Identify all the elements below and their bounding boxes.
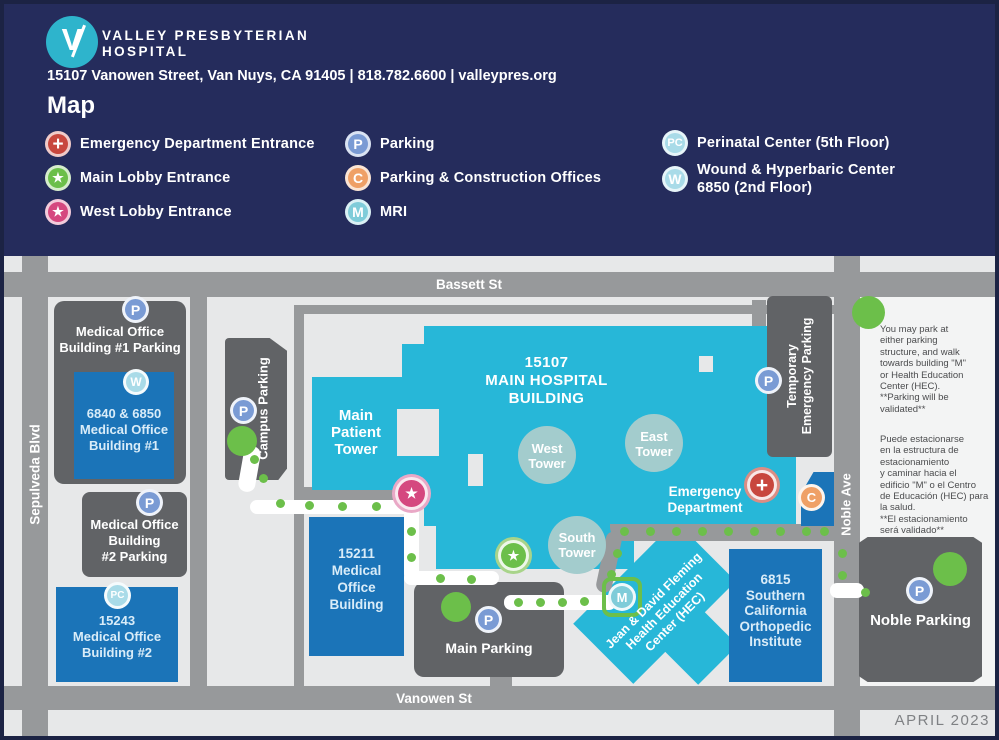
path-dot — [646, 527, 655, 536]
path-dot — [276, 499, 285, 508]
west-lobby-star-icon: ★ — [45, 199, 71, 225]
parking-icon: P — [122, 296, 149, 323]
walkway — [404, 571, 499, 585]
legend-label: MRI — [380, 203, 407, 221]
main-parking-label: Main Parking — [414, 640, 564, 656]
page-title: Map — [47, 92, 95, 120]
west-lobby-star-icon: ★ — [395, 477, 428, 510]
parking-icon: P — [475, 606, 502, 633]
legend-item-parking: P Parking — [345, 131, 435, 157]
path-dot — [861, 588, 870, 597]
legend-label: West Lobby Entrance — [80, 203, 232, 221]
path-dot — [698, 527, 707, 536]
perinatal-center-icon: PC — [662, 130, 688, 156]
parking-icon: P — [755, 367, 782, 394]
street-label-sepulveda: Sepulveda Blvd — [28, 400, 43, 550]
path-dot — [613, 549, 622, 558]
main-lobby-star-icon: ★ — [498, 540, 529, 571]
street-label-bassett: Bassett St — [404, 277, 534, 292]
legend-label: Wound & Hyperbaric Center 6850 (2nd Floo… — [697, 161, 895, 197]
path-dot — [372, 502, 381, 511]
path-dot — [838, 549, 847, 558]
construction-offices-icon: C — [345, 165, 371, 191]
mob2-parking-label: Medical Office Building #2 Parking — [82, 517, 187, 565]
scoi-label: 6815 Southern California Orthopedic Inst… — [729, 572, 822, 650]
address-line: 15107 Vanowen Street, Van Nuys, CA 91405… — [47, 68, 557, 84]
street-middle — [190, 297, 207, 686]
west-tower-label: West Tower — [518, 441, 576, 471]
mob1-label: 6840 & 6850 Medical Office Building #1 — [74, 406, 174, 454]
mob15211-label: 15211 Medical Office Building — [309, 545, 404, 613]
street-label-vanowen: Vanowen St — [374, 691, 494, 706]
parking-icon: P — [906, 577, 933, 604]
legend-item-mri: M MRI — [345, 199, 407, 225]
legend-item-west-lobby: ★ West Lobby Entrance — [45, 199, 232, 225]
path-dot — [724, 527, 733, 536]
mob1-parking-label: Medical Office Building #1 Parking — [54, 324, 186, 356]
parking-icon: P — [136, 489, 163, 516]
parking-icon: P — [230, 397, 257, 424]
hospital-name-line2: HOSPITAL — [102, 44, 188, 59]
east-tower-label: East Tower — [625, 429, 683, 459]
path-dot — [750, 527, 759, 536]
path-dot — [407, 553, 416, 562]
temp-parking-line2: Emergency Parking — [800, 318, 814, 435]
path-dot — [802, 527, 811, 536]
header: V VALLEY PRESBYTERIAN HOSPITAL 15107 Van… — [4, 4, 995, 256]
legend-item-main-lobby: ★ Main Lobby Entrance — [45, 165, 230, 191]
path-dot — [514, 598, 523, 607]
legend-item-emergency-entrance: + Emergency Department Entrance — [45, 131, 315, 157]
mri-icon: M — [608, 583, 636, 611]
parking-note-english: You may park at either parking structure… — [880, 324, 998, 415]
main-hospital-label: 15107 MAIN HOSPITAL BUILDING — [459, 354, 634, 408]
construction-offices-icon: C — [798, 484, 825, 511]
legend-label: Perinatal Center (5th Floor) — [697, 134, 890, 152]
hospital-slot-notch — [468, 454, 483, 486]
path-dot — [338, 502, 347, 511]
hospital-map-flyer: V VALLEY PRESBYTERIAN HOSPITAL 15107 Van… — [0, 0, 999, 740]
walkway — [250, 500, 416, 514]
hospital-courtyard-notch — [397, 409, 439, 456]
walkway — [830, 583, 864, 598]
street-label-noble: Noble Ave — [839, 450, 854, 560]
main-parking-green-marker — [441, 592, 471, 622]
hospital-name-line1: VALLEY PRESBYTERIAN — [102, 28, 309, 43]
path-dot — [536, 598, 545, 607]
noble-parking-label: Noble Parking — [859, 612, 982, 629]
main-lobby-star-icon: ★ — [45, 165, 71, 191]
path-dot — [436, 574, 445, 583]
emergency-entrance-icon: + — [747, 470, 777, 500]
path-dot — [672, 527, 681, 536]
path-dot — [467, 575, 476, 584]
perinatal-center-icon: PC — [104, 582, 131, 609]
path-dot — [305, 501, 314, 510]
wound-center-icon: W — [662, 166, 688, 192]
mob2-label: 15243 Medical Office Building #2 — [56, 613, 178, 661]
path-dot — [838, 571, 847, 580]
map-date: APRIL 2023 — [860, 712, 990, 729]
path-dot — [607, 570, 616, 579]
path-dot — [259, 474, 268, 483]
legend-label: Main Lobby Entrance — [80, 169, 230, 187]
legend-label: Parking — [380, 135, 435, 153]
legend-item-perinatal-center: PC Perinatal Center (5th Floor) — [662, 130, 890, 156]
path-dot — [407, 527, 416, 536]
legend-label: Parking & Construction Offices — [380, 169, 601, 187]
path-dot — [250, 455, 259, 464]
hospital-logo-icon: V — [46, 16, 98, 68]
path-dot — [776, 527, 785, 536]
wound-center-icon: W — [123, 369, 149, 395]
campus-parking-green-marker — [227, 426, 257, 456]
mri-icon: M — [345, 199, 371, 225]
parking-note-spanish: Puede estacionarse en la estructura de e… — [880, 434, 998, 537]
south-tower-label: South Tower — [548, 530, 606, 560]
path-dot — [580, 597, 589, 606]
noble-parking-green-marker — [933, 552, 967, 586]
parking-icon: P — [345, 131, 371, 157]
legend-label: Emergency Department Entrance — [80, 135, 315, 153]
hospital-small-notch — [699, 356, 713, 372]
legend-item-wound-center: W Wound & Hyperbaric Center 6850 (2nd Fl… — [662, 161, 895, 197]
path-dot — [820, 527, 829, 536]
emergency-entrance-icon: + — [45, 131, 71, 157]
temp-emergency-parking-label: TemporaryEmergency Parking — [785, 296, 815, 456]
legend-item-construction-offices: C Parking & Construction Offices — [345, 165, 601, 191]
path-dot — [620, 527, 629, 536]
path-dot — [558, 598, 567, 607]
walkway — [404, 502, 419, 580]
temp-parking-line1: Temporary — [785, 344, 799, 408]
main-patient-tower-label: Main Patient Tower — [311, 407, 401, 458]
